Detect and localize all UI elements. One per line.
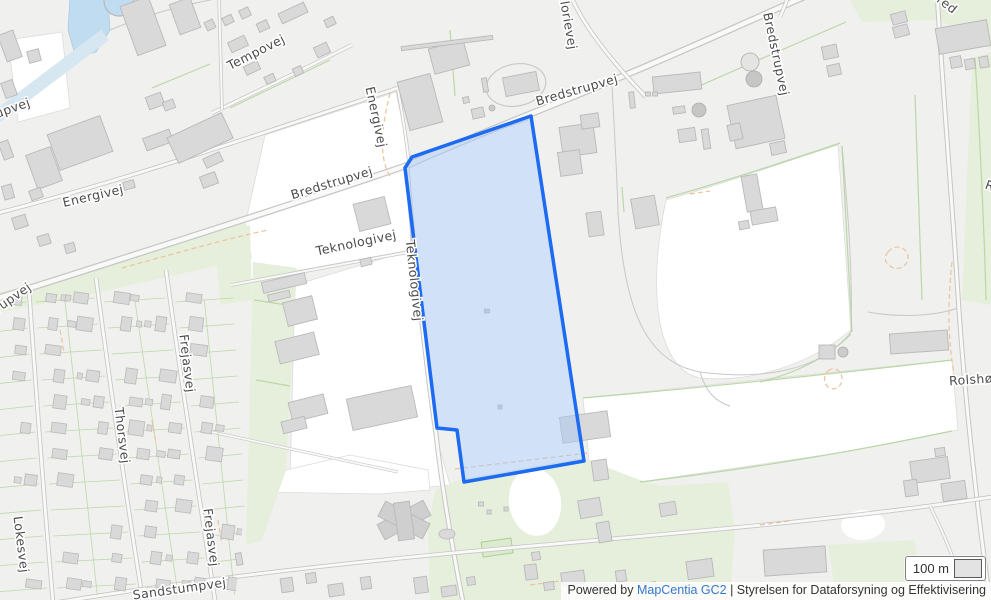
scale-bar-label: 100 m xyxy=(913,561,949,576)
street-label: Lokesvej xyxy=(11,515,33,574)
map-canvas[interactable]: upvejTempovejEnergivejEnergivejBredstrup… xyxy=(0,0,991,600)
street-label: Bredstrupvej xyxy=(760,11,792,97)
attribution-powered-by: Powered by xyxy=(567,583,636,597)
mapcentia-link[interactable]: MapCentia GC2 xyxy=(637,583,727,597)
attribution-bar: Powered by MapCentia GC2 | Styrelsen for… xyxy=(561,582,991,600)
attribution-agency: Styrelsen for Dataforsyning og Effektivi… xyxy=(737,583,986,597)
scale-bar: 100 m xyxy=(905,556,986,581)
attribution-separator: | xyxy=(727,583,737,597)
street-label: Rolshøjvej xyxy=(949,369,991,389)
street-label: Bredstrupvej xyxy=(534,71,620,109)
scale-bar-segment xyxy=(954,559,982,578)
street-label: Thorsvej xyxy=(111,405,133,464)
map-application: upvejTempovejEnergivejEnergivejBredstrup… xyxy=(0,0,991,600)
